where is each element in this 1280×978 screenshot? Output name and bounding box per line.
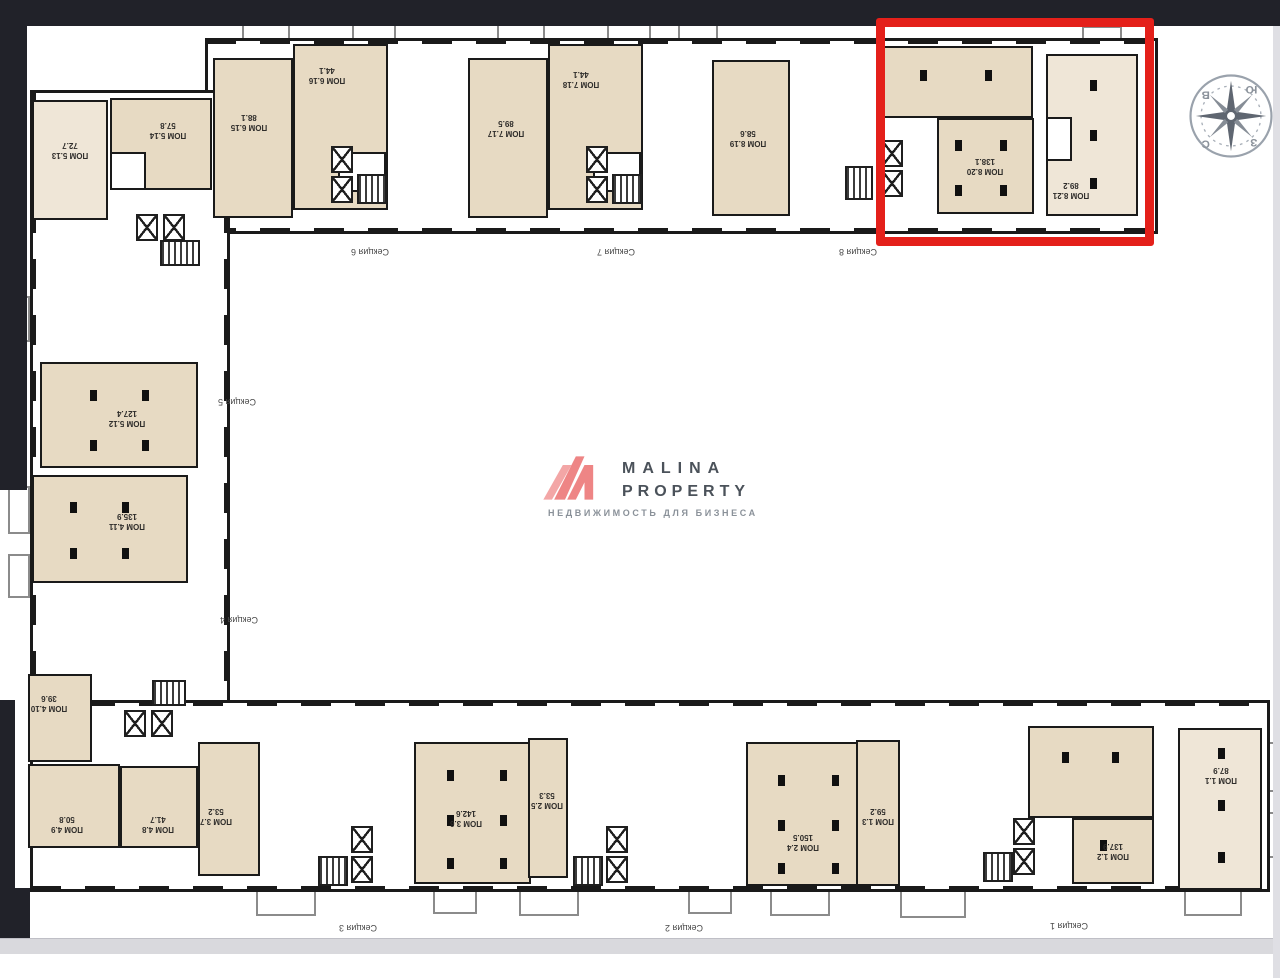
porch [770, 888, 830, 916]
bottom-strip [0, 938, 1280, 954]
room-name: ПОМ 3.6 [450, 818, 482, 828]
room [32, 100, 108, 220]
structural-column [1218, 800, 1225, 811]
room [468, 58, 548, 218]
structural-column [447, 858, 454, 869]
logo-name-line1: MALINA [622, 460, 726, 478]
section-label: Секция 3 [339, 923, 377, 933]
room [28, 764, 120, 848]
room-name: ПОМ 1.3 [862, 816, 894, 826]
elevator-shaft-icon [331, 176, 353, 203]
room-label: ПОМ 1.359.2 [862, 806, 894, 826]
section-label: Секция 5 [218, 397, 256, 407]
porch [1184, 888, 1242, 916]
staircase-icon [612, 174, 642, 204]
inner-room [110, 152, 146, 190]
compass-letter-z: З [1250, 136, 1257, 148]
structural-column [90, 390, 97, 401]
staircase-icon [845, 166, 873, 200]
room-name: ПОМ 6.15 [231, 122, 267, 132]
logo: MALINA PROPERTY НЕДВИЖИМОСТЬ ДЛЯ БИЗНЕСА [540, 448, 775, 520]
room-area: 58.6 [730, 128, 766, 138]
section-label: Секция 1 [1050, 921, 1088, 931]
elevator-shaft-icon [331, 146, 353, 173]
staircase-icon [983, 852, 1013, 882]
elevator-shaft-icon [606, 856, 628, 883]
room-name: ПОМ 5.13 [52, 150, 88, 160]
structural-column [778, 820, 785, 831]
structural-column [832, 820, 839, 831]
room-name: ПОМ 4.9 [51, 824, 83, 834]
floorplan-page: ПОМ 5.1372.7ПОМ 5.1457.8ПОМ 6.1588.1ПОМ … [0, 0, 1280, 978]
porch [900, 888, 966, 918]
room-name: ПОМ 4.8 [142, 824, 174, 834]
room-area: 72.7 [52, 140, 88, 150]
structural-column [1062, 752, 1069, 763]
structural-column [447, 770, 454, 781]
room-label: ПОМ 7.1789.5 [488, 118, 524, 138]
room-label: ПОМ 2.553.3 [531, 790, 563, 810]
room-area: 137.9 [1097, 841, 1129, 851]
structural-column [778, 775, 785, 786]
structural-column [1218, 748, 1225, 759]
room-area: 135.9 [109, 511, 145, 521]
room-name: ПОМ 7.18 [563, 79, 599, 89]
room-label: ПОМ 1.187.9 [1205, 765, 1237, 785]
elevator-shaft-icon [351, 826, 373, 853]
room-area: 59.2 [862, 806, 894, 816]
room-label: ПОМ 5.12127.4 [109, 408, 145, 428]
porch [519, 888, 579, 916]
compass-letter-s: С [1202, 138, 1210, 150]
elevator-shaft-icon [606, 826, 628, 853]
room-area: 89.5 [488, 118, 524, 128]
elevator-shaft-icon [163, 214, 185, 241]
room [28, 674, 92, 762]
room-label: ПОМ 3.6142.6 [450, 808, 482, 828]
room [213, 58, 293, 218]
room-area: 53.3 [531, 790, 563, 800]
elevator-shaft-icon [586, 146, 608, 173]
room-name: ПОМ 2.4 [787, 842, 819, 852]
room-label: ПОМ 4.1039.6 [31, 693, 67, 713]
room-area: 127.4 [109, 408, 145, 418]
elevator-shaft-icon [586, 176, 608, 203]
room-area: 150.5 [787, 832, 819, 842]
compass-letter-yu: Ю [1245, 83, 1257, 95]
structural-column [90, 440, 97, 451]
room-area: 39.6 [31, 693, 67, 703]
staircase-icon [160, 240, 200, 266]
room-name: ПОМ 1.1 [1205, 775, 1237, 785]
room-label: ПОМ 6.1588.1 [231, 112, 267, 132]
compass-letter-v: В [1202, 88, 1210, 100]
room [1028, 726, 1154, 818]
room-label: ПОМ 7.1844.1 [563, 69, 599, 89]
structural-column [500, 858, 507, 869]
left-bar-upper [0, 26, 27, 490]
porch [8, 554, 30, 598]
staircase-icon [152, 680, 186, 706]
compass-rose-icon: В Ю З С [1187, 72, 1275, 160]
room-label: ПОМ 4.841.7 [142, 814, 174, 834]
left-bar-corner [0, 888, 30, 938]
staircase-icon [573, 856, 603, 886]
structural-column [1218, 852, 1225, 863]
logo-mark-icon [540, 452, 616, 504]
structural-column [500, 815, 507, 826]
structural-column [122, 548, 129, 559]
logo-tagline: НЕДВИЖИМОСТЬ ДЛЯ БИЗНЕСА [548, 508, 758, 518]
structural-column [832, 863, 839, 874]
room-label: ПОМ 8.1958.6 [730, 128, 766, 148]
room [120, 766, 198, 848]
room-label: ПОМ 5.1372.7 [52, 140, 88, 160]
section-label: Секция 8 [839, 247, 877, 257]
room-name: ПОМ 8.19 [730, 138, 766, 148]
room-area: 88.1 [231, 112, 267, 122]
room-name: ПОМ 3.7 [200, 816, 232, 826]
room-label: ПОМ 6.1644.1 [309, 65, 345, 85]
section-label: Секция 4 [220, 615, 258, 625]
section-label: Секция 7 [597, 247, 635, 257]
room-label: ПОМ 4.950.8 [51, 814, 83, 834]
room-label: ПОМ 3.753.2 [200, 806, 232, 826]
room-area: 50.8 [51, 814, 83, 824]
room-area: 57.8 [150, 120, 186, 130]
room-area: 142.6 [450, 808, 482, 818]
room-name: ПОМ 2.5 [531, 800, 563, 810]
staircase-icon [357, 174, 387, 204]
structural-column [1112, 752, 1119, 763]
elevator-shaft-icon [1013, 818, 1035, 845]
right-scroll-strip [1273, 26, 1280, 978]
elevator-shaft-icon [124, 710, 146, 737]
room-area: 41.7 [142, 814, 174, 824]
structural-column [832, 775, 839, 786]
elevator-shaft-icon [136, 214, 158, 241]
room-name: ПОМ 4.11 [109, 521, 145, 531]
elevator-shaft-icon [151, 710, 173, 737]
room-label: ПОМ 2.4150.5 [787, 832, 819, 852]
structural-column [142, 440, 149, 451]
structural-column [70, 548, 77, 559]
room-name: ПОМ 7.17 [488, 128, 524, 138]
porch [8, 486, 30, 534]
room-name: ПОМ 5.14 [150, 130, 186, 140]
room-label: ПОМ 4.11135.9 [109, 511, 145, 531]
highlight-box [876, 18, 1154, 246]
room-name: ПОМ 1.2 [1097, 851, 1129, 861]
room-label: ПОМ 1.2137.9 [1097, 841, 1129, 861]
section-label: Секция 2 [665, 923, 703, 933]
room-area: 44.1 [309, 65, 345, 75]
structural-column [778, 863, 785, 874]
room-area: 44.1 [563, 69, 599, 79]
elevator-shaft-icon [351, 856, 373, 883]
room [746, 742, 861, 886]
elevator-shaft-icon [1013, 848, 1035, 875]
structural-column [70, 502, 77, 513]
room-name: ПОМ 6.16 [309, 75, 345, 85]
room-area: 53.2 [200, 806, 232, 816]
room-label: ПОМ 5.1457.8 [150, 120, 186, 140]
structural-column [500, 770, 507, 781]
structural-column [142, 390, 149, 401]
staircase-icon [318, 856, 348, 886]
section-label: Секция 6 [351, 247, 389, 257]
porch [256, 888, 316, 916]
room-area: 87.9 [1205, 765, 1237, 775]
room-name: ПОМ 5.12 [109, 418, 145, 428]
logo-name-line2: PROPERTY [622, 483, 750, 501]
room-name: ПОМ 4.10 [31, 703, 67, 713]
